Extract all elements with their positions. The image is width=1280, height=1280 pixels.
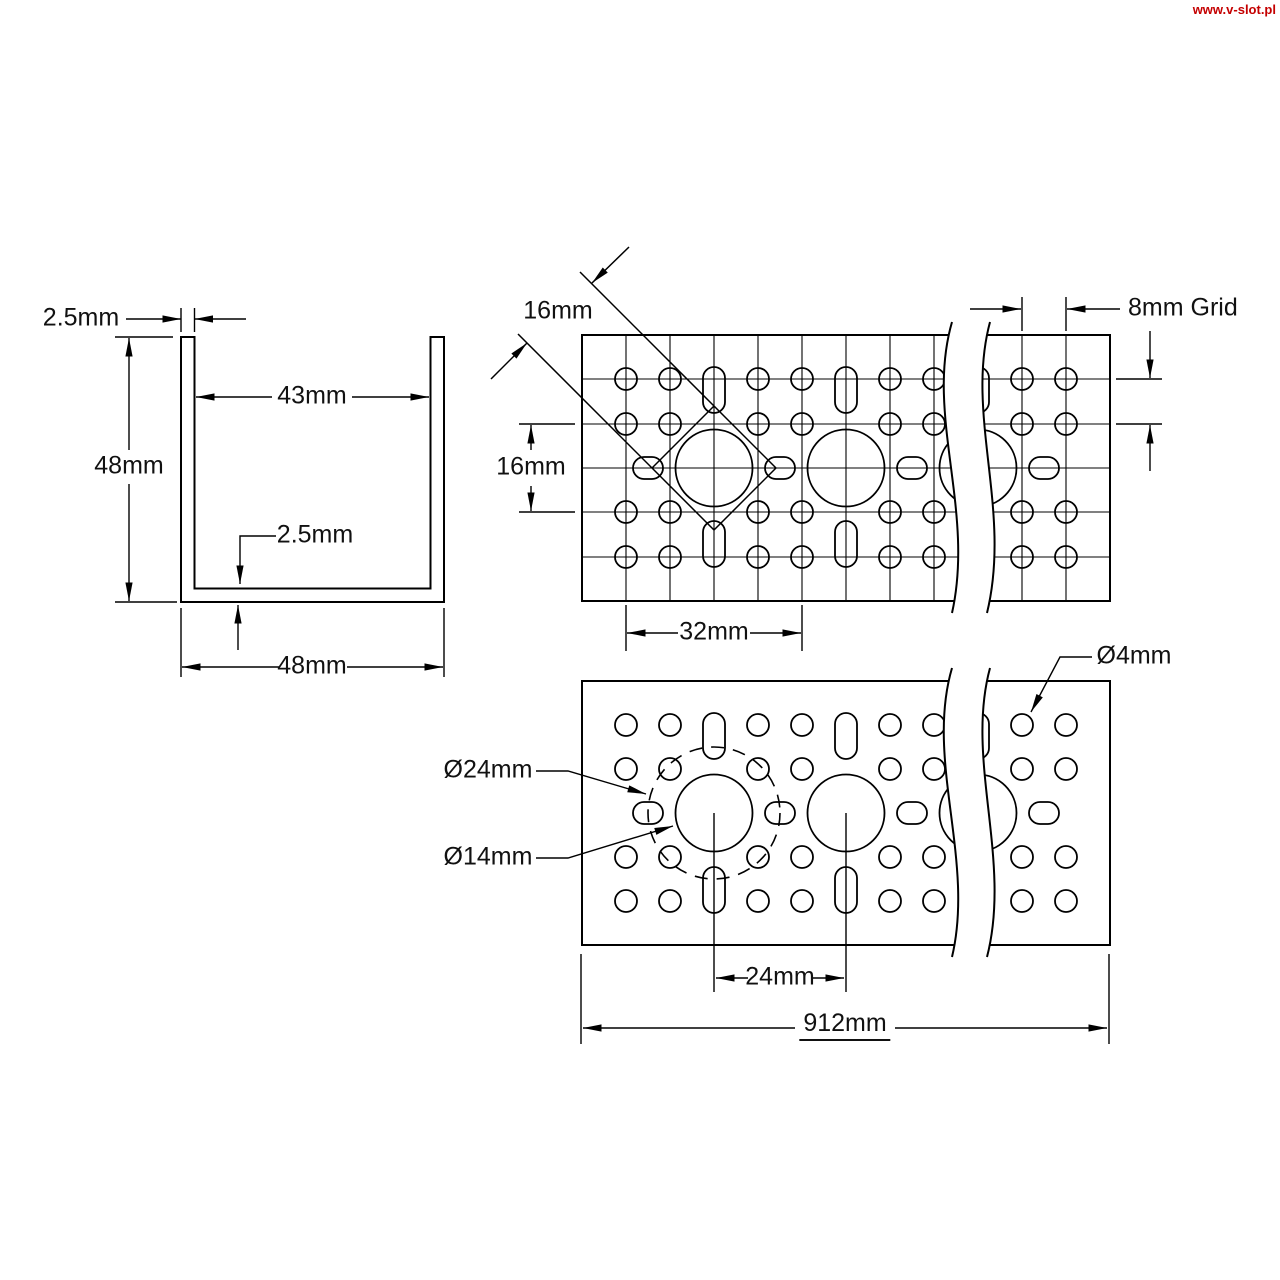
dim-label-bolt-circle-dia: Ø24mm: [444, 758, 533, 783]
dim-label-outer-width: 48mm: [277, 654, 346, 679]
dim-label-large-hole-dia: Ø14mm: [444, 845, 533, 870]
cross-section-view: [181, 337, 444, 602]
dim-label-inner-width: 43mm: [277, 384, 346, 409]
technical-drawing-canvas: 2.5mm 48mm 43mm 2.5mm 48mm 16mm 16mm 32m…: [0, 0, 1280, 1280]
dim-label-outer-height: 48mm: [94, 454, 163, 479]
dim-label-overall-length: 912mm: [799, 1011, 890, 1041]
side-view-16mm-square: [491, 247, 776, 530]
dim-label-wall-thickness-top: 2.5mm: [43, 306, 119, 331]
watermark-text: www.v-slot.pl: [1193, 2, 1276, 17]
dim-label-bottom-thickness: 2.5mm: [277, 523, 353, 548]
dim-label-large-hole-spacing: 24mm: [745, 965, 814, 990]
technical-drawing-svg: [0, 0, 1280, 1280]
side-view-grid-lines: [582, 335, 1110, 601]
dim-label-pattern-height: 16mm: [496, 455, 565, 480]
dim-label-square-pattern: 16mm: [523, 299, 592, 324]
dim-label-grid: 8mm Grid: [1128, 296, 1238, 321]
dim-label-hole-spacing-32: 32mm: [679, 620, 748, 645]
cross-section-dimensions: [115, 308, 444, 677]
dim-label-small-hole-dia: Ø4mm: [1097, 644, 1172, 669]
u-channel-outline: [181, 337, 444, 602]
